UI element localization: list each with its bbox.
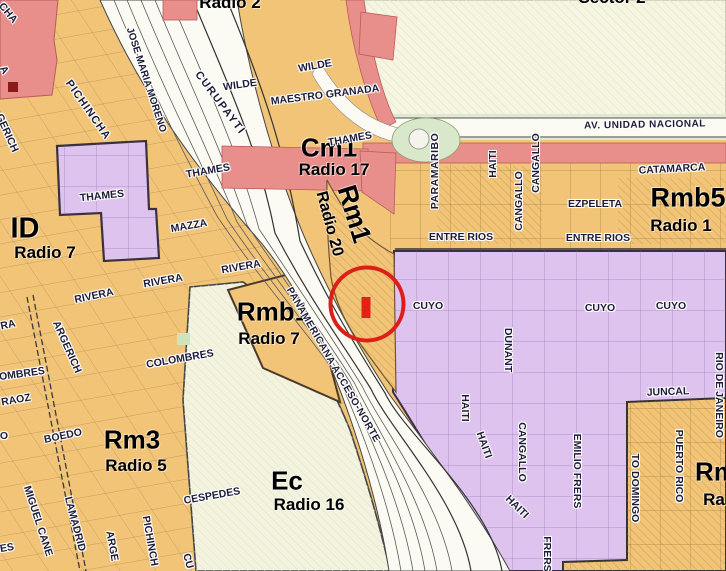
zone-top-left-pink bbox=[0, 0, 58, 99]
map-background bbox=[0, 0, 726, 571]
annotation-marker bbox=[362, 297, 371, 318]
green-square bbox=[177, 333, 190, 345]
zone-sector2-cream bbox=[340, 0, 726, 126]
zoning-map-canvas[interactable]: Radio 2Sector 2Cm1Radio 17Rm1Radio 20IDR… bbox=[0, 0, 726, 571]
